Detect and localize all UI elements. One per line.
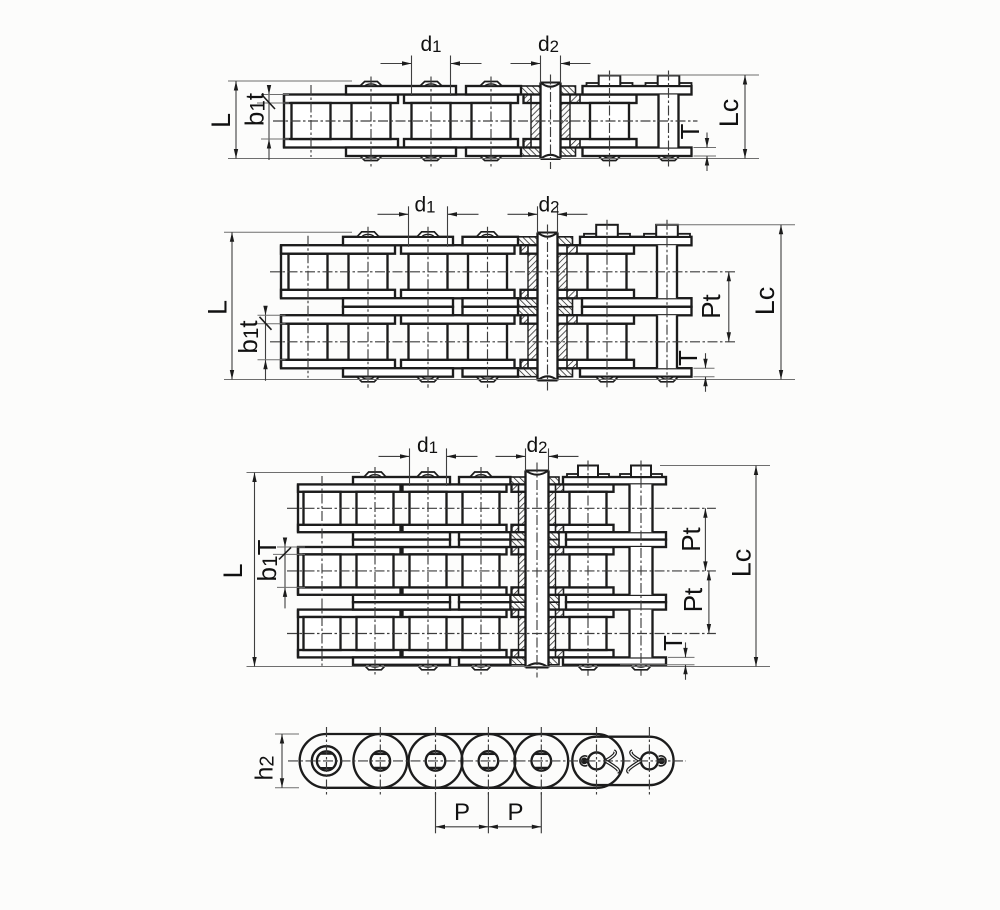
svg-text:Pt: Pt: [676, 526, 706, 551]
svg-text:Lc: Lc: [727, 549, 757, 578]
svg-text:T: T: [673, 350, 703, 366]
svg-text:d2: d2: [538, 194, 559, 217]
svg-text:P: P: [507, 799, 523, 826]
svg-text:L: L: [218, 563, 248, 578]
svg-text:L: L: [203, 300, 233, 315]
svg-text:Lc: Lc: [714, 99, 744, 128]
svg-text:d1: d1: [414, 194, 435, 217]
svg-text:d1: d1: [420, 33, 441, 56]
svg-text:T: T: [658, 635, 688, 651]
svg-text:d2: d2: [538, 33, 559, 56]
svg-text:d1: d1: [417, 434, 438, 457]
svg-text:L: L: [206, 113, 236, 128]
svg-text:d2: d2: [526, 434, 547, 457]
svg-text:T: T: [675, 123, 705, 139]
svg-text:Lc: Lc: [750, 287, 780, 316]
svg-text:Pt: Pt: [678, 587, 708, 612]
svg-text:Pt: Pt: [696, 293, 726, 318]
svg-text:P: P: [454, 799, 470, 826]
